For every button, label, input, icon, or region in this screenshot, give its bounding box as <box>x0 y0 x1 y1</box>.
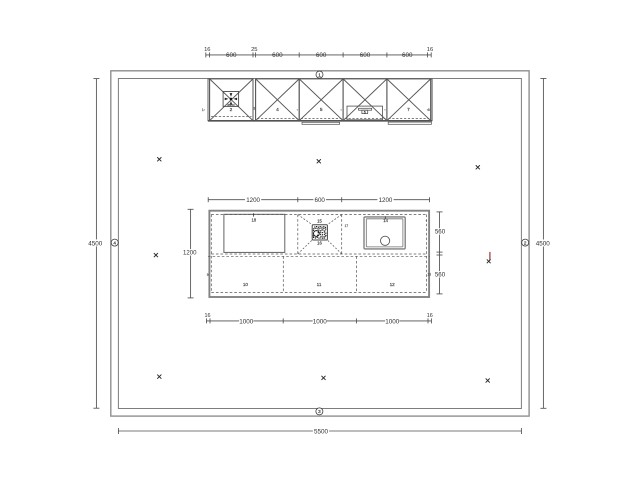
svg-text:‹: ‹ <box>297 108 298 112</box>
svg-text:560: 560 <box>435 272 446 279</box>
svg-text:11: 11 <box>317 282 322 287</box>
svg-text:18: 18 <box>251 217 256 222</box>
svg-text:16: 16 <box>427 47 433 53</box>
svg-text:‹: ‹ <box>426 219 427 223</box>
svg-text:1: 1 <box>318 72 321 77</box>
svg-text:‹: ‹ <box>384 108 385 112</box>
svg-text:560: 560 <box>435 229 446 236</box>
svg-text:6: 6 <box>364 110 366 114</box>
svg-text:1000: 1000 <box>385 318 400 325</box>
svg-text:13: 13 <box>428 273 432 277</box>
svg-text:10: 10 <box>243 282 249 287</box>
svg-text:1000: 1000 <box>313 318 328 325</box>
svg-text:12: 12 <box>390 282 396 287</box>
svg-text:1200: 1200 <box>183 250 197 257</box>
svg-text:4500: 4500 <box>88 240 103 247</box>
svg-text:Ø150: Ø150 <box>227 103 235 107</box>
svg-text:3: 3 <box>318 409 321 414</box>
svg-text:15: 15 <box>317 219 322 224</box>
svg-text:16: 16 <box>204 47 210 53</box>
svg-text:600: 600 <box>272 52 283 59</box>
svg-text:2: 2 <box>230 107 233 113</box>
svg-text:1200: 1200 <box>246 197 260 204</box>
svg-text:600: 600 <box>402 52 413 59</box>
svg-text:600: 600 <box>226 52 237 59</box>
svg-text:17: 17 <box>345 224 349 228</box>
svg-text:7: 7 <box>407 107 410 113</box>
svg-text:600: 600 <box>315 197 326 204</box>
svg-text:5500: 5500 <box>314 428 329 435</box>
svg-text:5: 5 <box>320 107 323 113</box>
svg-text:1000: 1000 <box>239 318 254 325</box>
svg-text:2: 2 <box>524 240 527 245</box>
svg-text:‹: ‹ <box>341 108 342 112</box>
svg-text:16: 16 <box>317 240 322 245</box>
svg-text:3: 3 <box>253 107 255 111</box>
svg-text:1›: 1› <box>202 108 205 112</box>
svg-text:9: 9 <box>207 273 209 277</box>
svg-text:‹8: ‹8 <box>427 108 430 112</box>
svg-text:4500: 4500 <box>536 240 551 247</box>
svg-text:16: 16 <box>427 313 433 319</box>
svg-text:4: 4 <box>113 240 116 245</box>
svg-text:1200: 1200 <box>379 197 393 204</box>
svg-text:4: 4 <box>276 107 279 113</box>
svg-text:14: 14 <box>383 218 388 223</box>
svg-text:16: 16 <box>205 313 211 319</box>
svg-text:25: 25 <box>251 47 257 53</box>
svg-text:600: 600 <box>360 52 371 59</box>
svg-text:600: 600 <box>316 52 327 59</box>
